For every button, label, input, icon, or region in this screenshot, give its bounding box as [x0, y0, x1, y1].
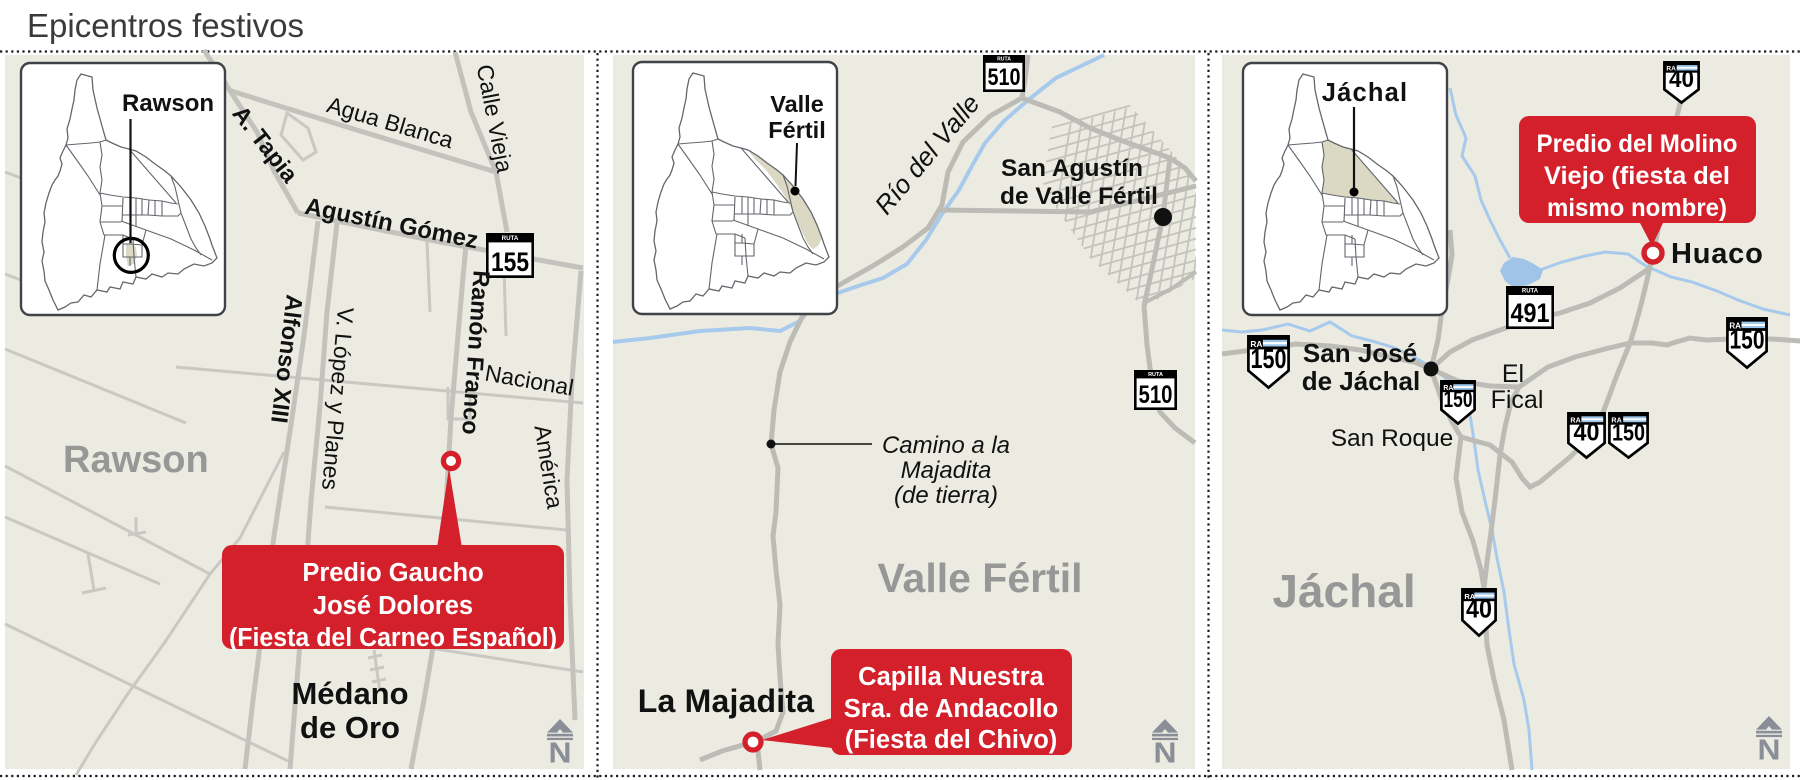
svg-text:510: 510: [1139, 381, 1173, 409]
svg-text:40: 40: [1574, 418, 1600, 446]
svg-text:Huaco: Huaco: [1671, 238, 1764, 270]
svg-text:Predio del Molino: Predio del Molino: [1537, 130, 1738, 158]
svg-text:de Oro: de Oro: [300, 710, 400, 745]
svg-text:155: 155: [491, 247, 529, 277]
svg-text:Valle Fértil: Valle Fértil: [877, 555, 1082, 601]
svg-text:RUTA: RUTA: [1148, 372, 1163, 378]
svg-text:Sra. de Andacollo: Sra. de Andacollo: [844, 695, 1058, 723]
svg-text:Predio Gaucho: Predio Gaucho: [302, 559, 483, 587]
svg-text:491: 491: [1511, 298, 1550, 328]
svg-text:150: 150: [1612, 419, 1645, 446]
svg-text:Jáchal: Jáchal: [1322, 79, 1409, 107]
svg-text:150: 150: [1444, 386, 1473, 412]
svg-text:(de tierra): (de tierra): [894, 482, 998, 509]
svg-text:El: El: [1502, 360, 1524, 388]
svg-text:N: N: [549, 738, 572, 770]
svg-text:Rawson: Rawson: [122, 90, 214, 117]
svg-text:150: 150: [1730, 325, 1765, 355]
svg-text:San José: San José: [1303, 338, 1417, 368]
svg-text:La Majadita: La Majadita: [638, 683, 814, 719]
svg-text:mismo nombre): mismo nombre): [1547, 194, 1727, 222]
svg-text:San Agustín: San Agustín: [1001, 155, 1143, 182]
svg-text:Fértil: Fértil: [768, 117, 825, 143]
svg-text:40: 40: [1466, 596, 1492, 624]
svg-text:RUTA: RUTA: [997, 56, 1011, 62]
svg-text:RUTA: RUTA: [502, 235, 519, 242]
svg-text:Fical: Fical: [1491, 386, 1544, 414]
svg-text:Valle: Valle: [770, 91, 824, 117]
svg-text:Camino a la: Camino a la: [882, 432, 1010, 459]
svg-text:Capilla Nuestra: Capilla Nuestra: [858, 663, 1044, 691]
svg-text:Médano: Médano: [291, 676, 408, 711]
svg-text:N: N: [1154, 738, 1177, 770]
svg-text:Viejo (fiesta del: Viejo (fiesta del: [1544, 162, 1730, 190]
svg-text:510: 510: [988, 64, 1021, 91]
svg-text:de Valle Fértil: de Valle Fértil: [1000, 183, 1158, 210]
svg-text:San Roque: San Roque: [1331, 425, 1454, 452]
svg-text:RUTA: RUTA: [1522, 289, 1539, 295]
svg-text:N: N: [1758, 735, 1781, 767]
svg-text:José Dolores: José Dolores: [313, 592, 473, 620]
svg-text:Epicentros festivos: Epicentros festivos: [27, 7, 304, 44]
svg-text:de Jáchal: de Jáchal: [1302, 366, 1421, 396]
svg-text:Rawson: Rawson: [63, 439, 209, 481]
svg-text:(Fiesta del Carneo Español): (Fiesta del Carneo Español): [229, 624, 557, 652]
svg-text:Jáchal: Jáchal: [1272, 565, 1415, 617]
svg-text:(Fiesta del Chivo): (Fiesta del Chivo): [845, 726, 1058, 754]
svg-text:40: 40: [1669, 66, 1694, 93]
svg-text:Majadita: Majadita: [901, 457, 992, 484]
svg-text:150: 150: [1251, 343, 1287, 374]
